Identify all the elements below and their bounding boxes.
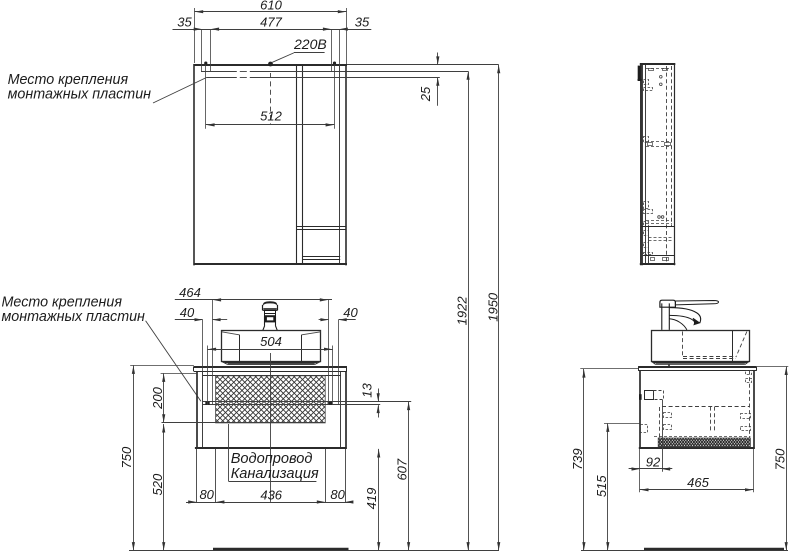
svg-text:35: 35 (177, 14, 192, 29)
svg-text:607: 607 (395, 458, 410, 480)
svg-text:92: 92 (646, 454, 661, 469)
svg-text:610: 610 (260, 0, 282, 12)
svg-text:монтажных пластин: монтажных пластин (8, 86, 152, 102)
svg-text:419: 419 (364, 488, 379, 510)
svg-text:477: 477 (260, 14, 282, 29)
svg-text:80: 80 (199, 487, 214, 502)
svg-text:40: 40 (343, 305, 358, 320)
svg-text:80: 80 (330, 487, 345, 502)
svg-text:Канализация: Канализация (231, 466, 319, 482)
svg-text:739: 739 (570, 448, 585, 470)
svg-text:750: 750 (772, 448, 787, 470)
svg-text:200: 200 (150, 386, 165, 409)
svg-text:520: 520 (150, 473, 165, 495)
svg-text:25: 25 (418, 86, 433, 102)
svg-text:35: 35 (355, 14, 370, 29)
svg-text:436: 436 (260, 487, 282, 502)
svg-text:750: 750 (119, 446, 134, 468)
svg-text:464: 464 (179, 285, 201, 300)
svg-text:1922: 1922 (454, 296, 469, 326)
svg-text:Место крепления: Место крепления (2, 294, 123, 310)
svg-text:40: 40 (180, 305, 195, 320)
svg-text:Водопровод: Водопровод (231, 451, 313, 467)
svg-text:220В: 220В (293, 36, 327, 52)
svg-text:515: 515 (594, 475, 609, 497)
svg-text:Место крепления: Место крепления (8, 72, 129, 88)
svg-text:монтажных пластин: монтажных пластин (2, 309, 146, 325)
svg-text:1950: 1950 (485, 292, 500, 322)
svg-text:512: 512 (260, 109, 282, 124)
svg-text:504: 504 (260, 334, 282, 349)
svg-text:13: 13 (360, 383, 375, 398)
svg-text:465: 465 (687, 475, 709, 490)
